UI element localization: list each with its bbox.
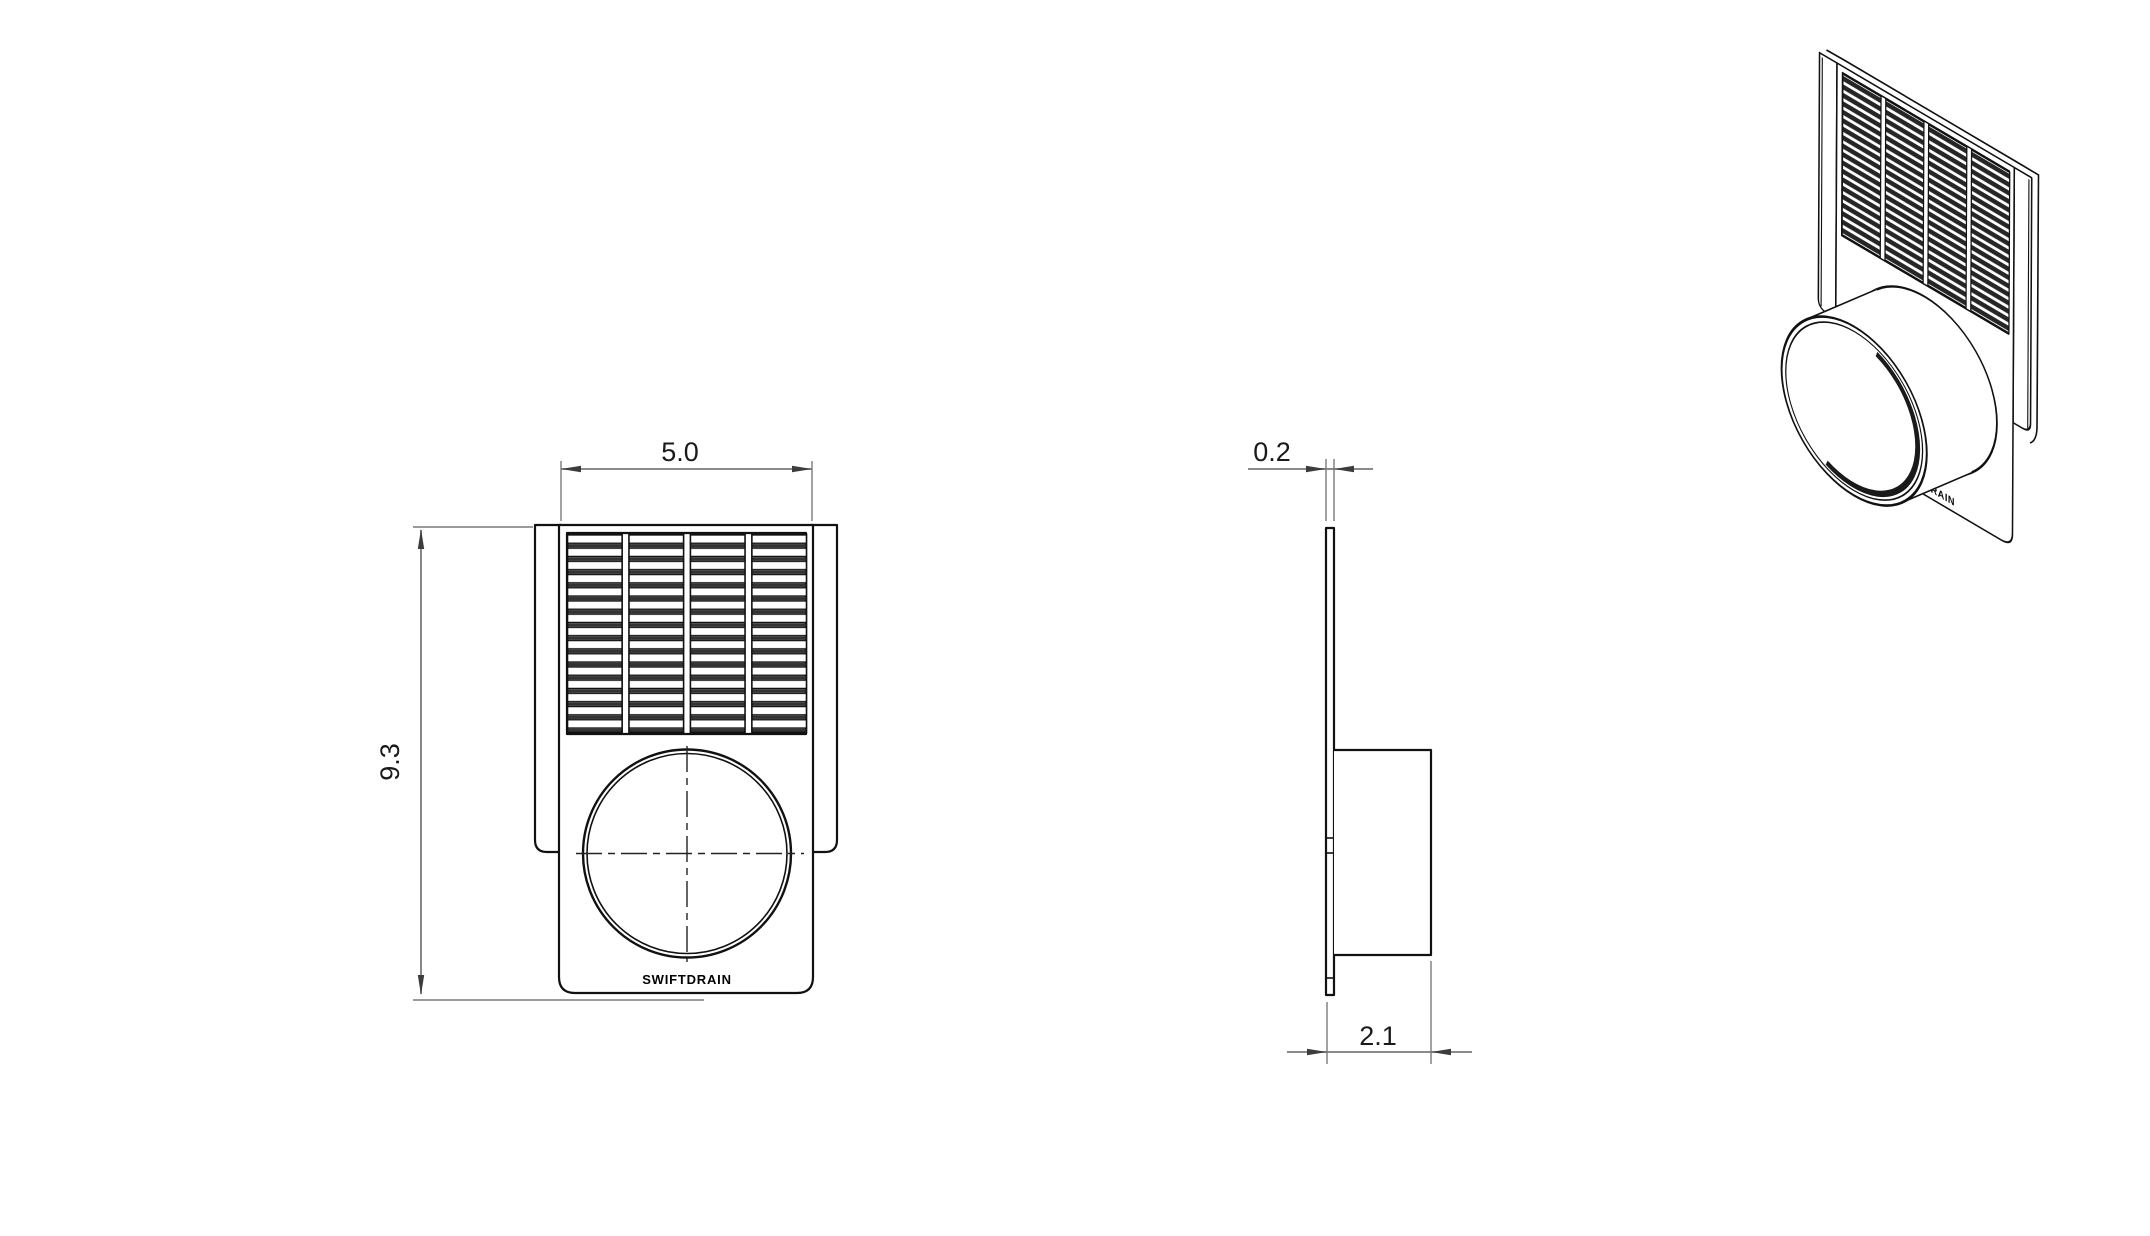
dimension-value: 5.0	[661, 437, 699, 467]
technical-drawing: SWIFTDRAIN 5.0 9.3	[0, 0, 2150, 1236]
arrowhead	[418, 975, 424, 995]
side-view: 0.2 2.1	[1248, 437, 1472, 1064]
iso-grille-column	[1928, 125, 1967, 308]
grille-column	[568, 535, 623, 733]
grille-column	[629, 535, 684, 733]
drawing-canvas: SWIFTDRAIN 5.0 9.3	[0, 0, 2150, 1236]
iso-plate-group: SWIFTDRAIN	[1781, 31, 2032, 599]
side-pipe-body	[1334, 750, 1431, 955]
front-view: SWIFTDRAIN 5.0 9.3	[375, 437, 837, 1000]
arrowhead	[1431, 1049, 1451, 1055]
brand-label: SWIFTDRAIN	[642, 972, 732, 987]
dimension-value: 9.3	[375, 743, 405, 781]
iso-grille-column	[1971, 150, 2010, 333]
isometric-view: SWIFTDRAIN	[1781, 31, 2038, 599]
arrowhead	[792, 466, 812, 472]
dimension-plate-thickness: 0.2	[1248, 437, 1373, 521]
side-faceplate-edge	[1326, 528, 1334, 995]
front-left-tab	[535, 525, 561, 852]
front-right-tab	[811, 525, 837, 852]
grille-column	[690, 535, 745, 733]
arrowhead	[418, 529, 424, 549]
dimension-value: 2.1	[1359, 1021, 1397, 1051]
grille-column	[752, 535, 807, 733]
iso-grille-column	[1842, 74, 1881, 257]
iso-grille-column	[1885, 99, 1924, 282]
arrowhead	[1334, 466, 1354, 472]
arrowhead	[1307, 1049, 1327, 1055]
dimension-total-depth: 2.1	[1287, 961, 1472, 1064]
arrowhead	[561, 466, 581, 472]
dimension-value: 0.2	[1253, 437, 1291, 467]
arrowhead	[1306, 466, 1326, 472]
dimension-front-width: 5.0	[561, 437, 812, 521]
